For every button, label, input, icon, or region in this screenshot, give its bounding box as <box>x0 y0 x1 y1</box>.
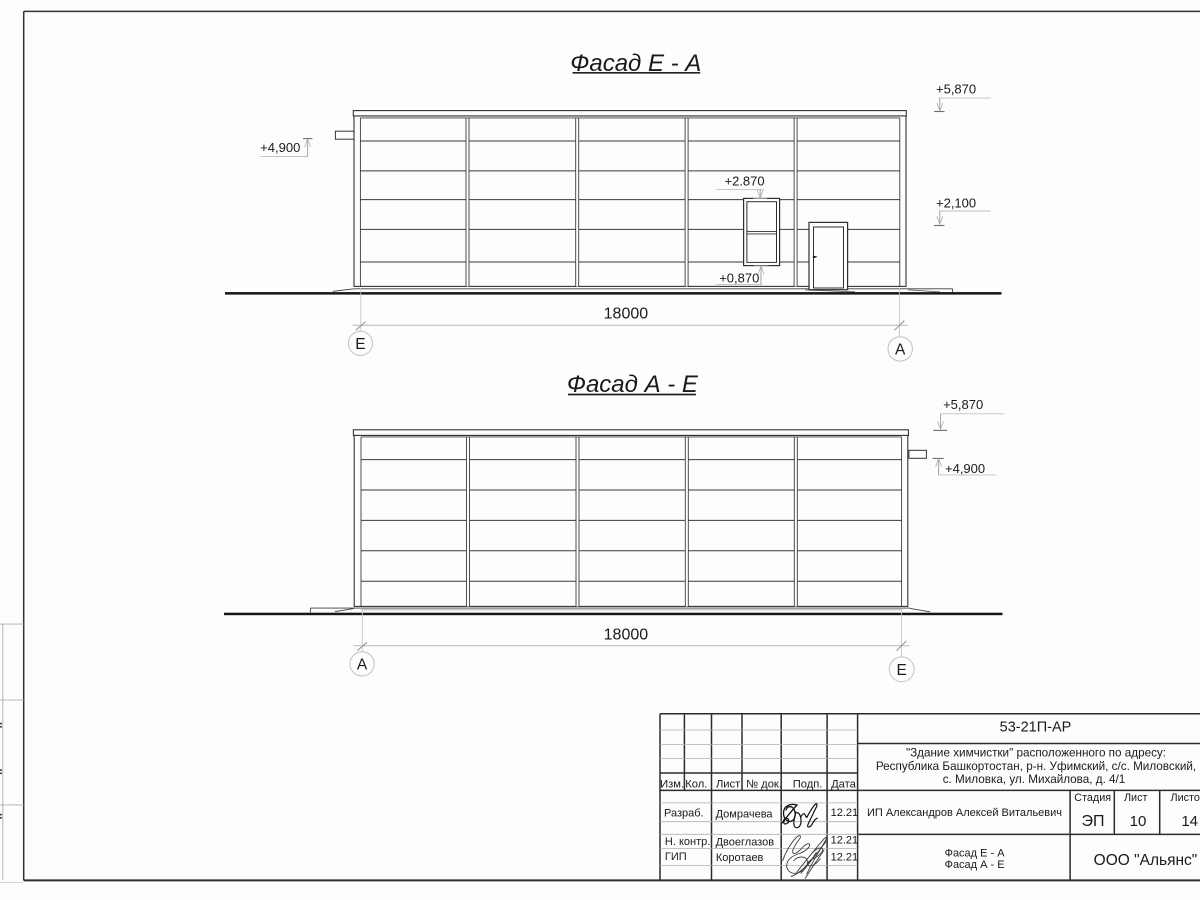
svg-text:"Здание химчистки" расположенн: "Здание химчистки" расположенного по адр… <box>906 747 1166 760</box>
svg-text:Подп.: Подп. <box>793 778 823 790</box>
svg-text:14: 14 <box>1181 813 1198 830</box>
svg-text:+4,900: +4,900 <box>260 140 300 155</box>
svg-text:+2.870: +2.870 <box>725 174 765 189</box>
svg-text:ИП Александров Алексей Виталье: ИП Александров Алексей Витальевич <box>867 807 1062 819</box>
svg-text:12.21: 12.21 <box>831 835 859 847</box>
svg-text:Двоеглазов: Двоеглазов <box>716 837 775 849</box>
svg-text:Изм.: Изм. <box>660 778 684 790</box>
svg-text:10: 10 <box>1130 813 1147 830</box>
svg-text:Домрачева: Домрачева <box>716 809 774 821</box>
svg-text:12.21: 12.21 <box>831 807 859 819</box>
svg-text:Е: Е <box>897 662 907 679</box>
svg-text:Лист: Лист <box>1124 792 1148 804</box>
svg-text:Коротаев: Коротаев <box>716 852 764 864</box>
svg-text:ГИП: ГИП <box>665 851 687 863</box>
svg-text:Республика Башкортостан, р-н.: Республика Башкортостан, р-н. Уфимский, … <box>876 760 1196 773</box>
svg-text:+5,870: +5,870 <box>943 397 983 412</box>
svg-text:ЭП: ЭП <box>1082 813 1105 830</box>
svg-text:Дата: Дата <box>831 778 857 790</box>
svg-text:№ док.: № док. <box>746 778 782 790</box>
svg-text:А: А <box>357 657 368 674</box>
svg-text:+5,870: +5,870 <box>936 82 976 97</box>
svg-text:Лист: Лист <box>716 778 740 790</box>
svg-text:53-21П-АР: 53-21П-АР <box>1000 720 1072 736</box>
svg-text:Разраб.: Разраб. <box>664 808 704 820</box>
svg-text:+2,100: +2,100 <box>936 196 976 211</box>
svg-text:Кол.: Кол. <box>685 778 707 790</box>
svg-text:с. Миловка, ул. Михайлова, д.: с. Миловка, ул. Михайлова, д. 4/1 <box>943 773 1126 786</box>
svg-text:Фасад Е - А: Фасад Е - А <box>945 848 1006 860</box>
svg-text:Фасад А - Е: Фасад А - Е <box>945 859 1005 871</box>
svg-text:18000: 18000 <box>604 626 649 643</box>
svg-text:Стадия: Стадия <box>1074 792 1111 804</box>
svg-text:Н. контр.: Н. контр. <box>665 836 710 848</box>
svg-text:ООО "Альянс": ООО "Альянс" <box>1094 852 1198 869</box>
svg-text:+0,870: +0,870 <box>719 271 759 286</box>
svg-text:Листов: Листов <box>1171 792 1200 804</box>
svg-text:А: А <box>895 342 906 359</box>
svg-text:12.21: 12.21 <box>831 852 859 864</box>
svg-text:18000: 18000 <box>604 306 649 323</box>
svg-text:+4,900: +4,900 <box>945 461 985 476</box>
svg-text:Е: Е <box>355 336 365 353</box>
